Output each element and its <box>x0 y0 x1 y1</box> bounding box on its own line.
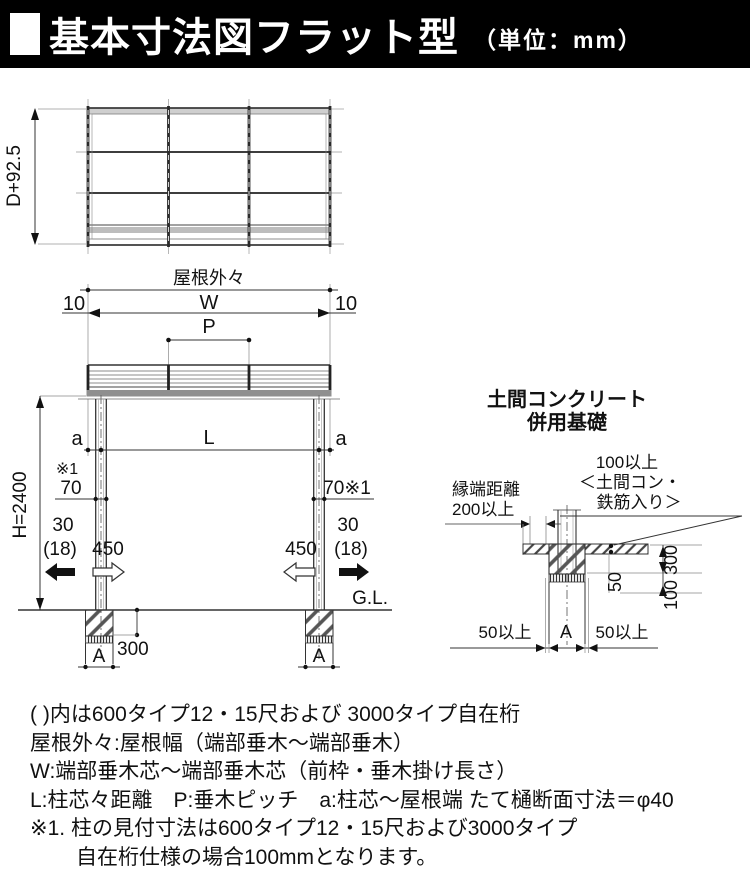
anchor-left-label: 450 <box>92 539 124 560</box>
plan-depth-dim-label: D+92.5 <box>4 145 25 207</box>
arrow-left-black <box>45 563 75 581</box>
note-line-1: ( )内は600タイプ12・15尺および 3000タイプ自在桁 <box>30 701 730 730</box>
title-bar: 基本寸法図フラット型 （単位：mm） <box>0 0 750 68</box>
detail-dim-300-label: 300 <box>661 545 681 575</box>
embed-left-label: 30 <box>52 515 73 536</box>
roof-outer-label: 屋根外々 <box>173 268 245 288</box>
dimension-drawing: D+92.5 屋根外々 W 10 10 P <box>0 68 750 700</box>
foundation-detail-drawing: 土間コンクリート 併用基礎 縁端距離 200以上 100以上 ＜土間コン・ 鉄筋… <box>445 388 742 653</box>
detail-title-line2: 併用基礎 <box>526 410 608 434</box>
footing-left: A 300 <box>78 608 149 669</box>
col-face-right-label: 70※1 <box>323 478 371 499</box>
unit-label: （単位：mm） <box>473 13 643 55</box>
footing-right: A <box>298 610 340 669</box>
offset-left-label: 10 <box>63 293 85 315</box>
arrow-right-outline <box>93 563 124 581</box>
page-title: 基本寸法図フラット型 <box>49 5 459 63</box>
detail-dim-50-label: 50 <box>605 572 625 592</box>
detail-a-label: A <box>560 622 572 642</box>
col-face-left-label: 70 <box>60 478 81 499</box>
dim-w-label: W <box>200 292 219 314</box>
roof-plan-view: D+92.5 <box>4 99 344 254</box>
detail-title-line1: 土間コンクリート <box>487 388 647 411</box>
note-ref-left: ※1 <box>56 461 78 478</box>
note-line-3: W:端部垂木芯～端部垂木芯（前枠・垂木掛け長さ） <box>30 758 730 787</box>
notes-section: ( )内は600タイプ12・15尺および 3000タイプ自在桁 屋根外々:屋根幅… <box>30 701 730 872</box>
ground-level-label: G.L. <box>352 588 388 609</box>
embed-left-paren-label: (18) <box>43 539 77 560</box>
offset-right-label: 10 <box>335 293 357 315</box>
edge-distance-label-line2: 200以上 <box>452 500 514 519</box>
footing-a-right-label: A <box>313 646 326 667</box>
dim-a-right-label: a <box>335 428 347 450</box>
min50-right-label: 50以上 <box>596 623 649 642</box>
anchor-right-label: 450 <box>285 539 317 560</box>
note-line-4: L:柱芯々距離 P:垂木ピッチ a:柱芯～屋根端 たて樋断面寸法＝φ40 <box>30 787 730 816</box>
dim-a-left-label: a <box>71 428 83 450</box>
note-line-2: 屋根外々:屋根幅（端部垂木～端部垂木） <box>30 730 730 759</box>
slab-label-line3: 鉄筋入り＞ <box>597 493 682 512</box>
arrow-right-black <box>339 563 369 581</box>
dim-p-label: P <box>202 316 215 338</box>
note-line-5: ※1. 柱の見付寸法は600タイプ12・15尺および3000タイプ <box>30 815 730 844</box>
arrow-left-outline <box>284 563 315 581</box>
title-square-bullet <box>10 13 40 55</box>
dim-l-label: L <box>203 427 214 449</box>
min50-left-label: 50以上 <box>479 623 532 642</box>
embed-right-paren-label: (18) <box>334 539 368 560</box>
front-elevation: 屋根外々 W 10 10 P <box>10 268 392 669</box>
slab-label-line2: ＜土間コン・ <box>579 473 681 492</box>
footing-a-left-label: A <box>93 646 106 667</box>
detail-dim-100-label: 100 <box>661 580 681 610</box>
edge-distance-label-line1: 縁端距離 <box>452 480 520 499</box>
height-dim-label: H=2400 <box>10 471 31 538</box>
slab-label-line1: 100以上 <box>596 453 658 472</box>
note-line-6: 自在桁仕様の場合100mmとなります。 <box>76 844 730 873</box>
embed-right-label: 30 <box>337 515 358 536</box>
footing-depth-label: 300 <box>117 639 149 660</box>
